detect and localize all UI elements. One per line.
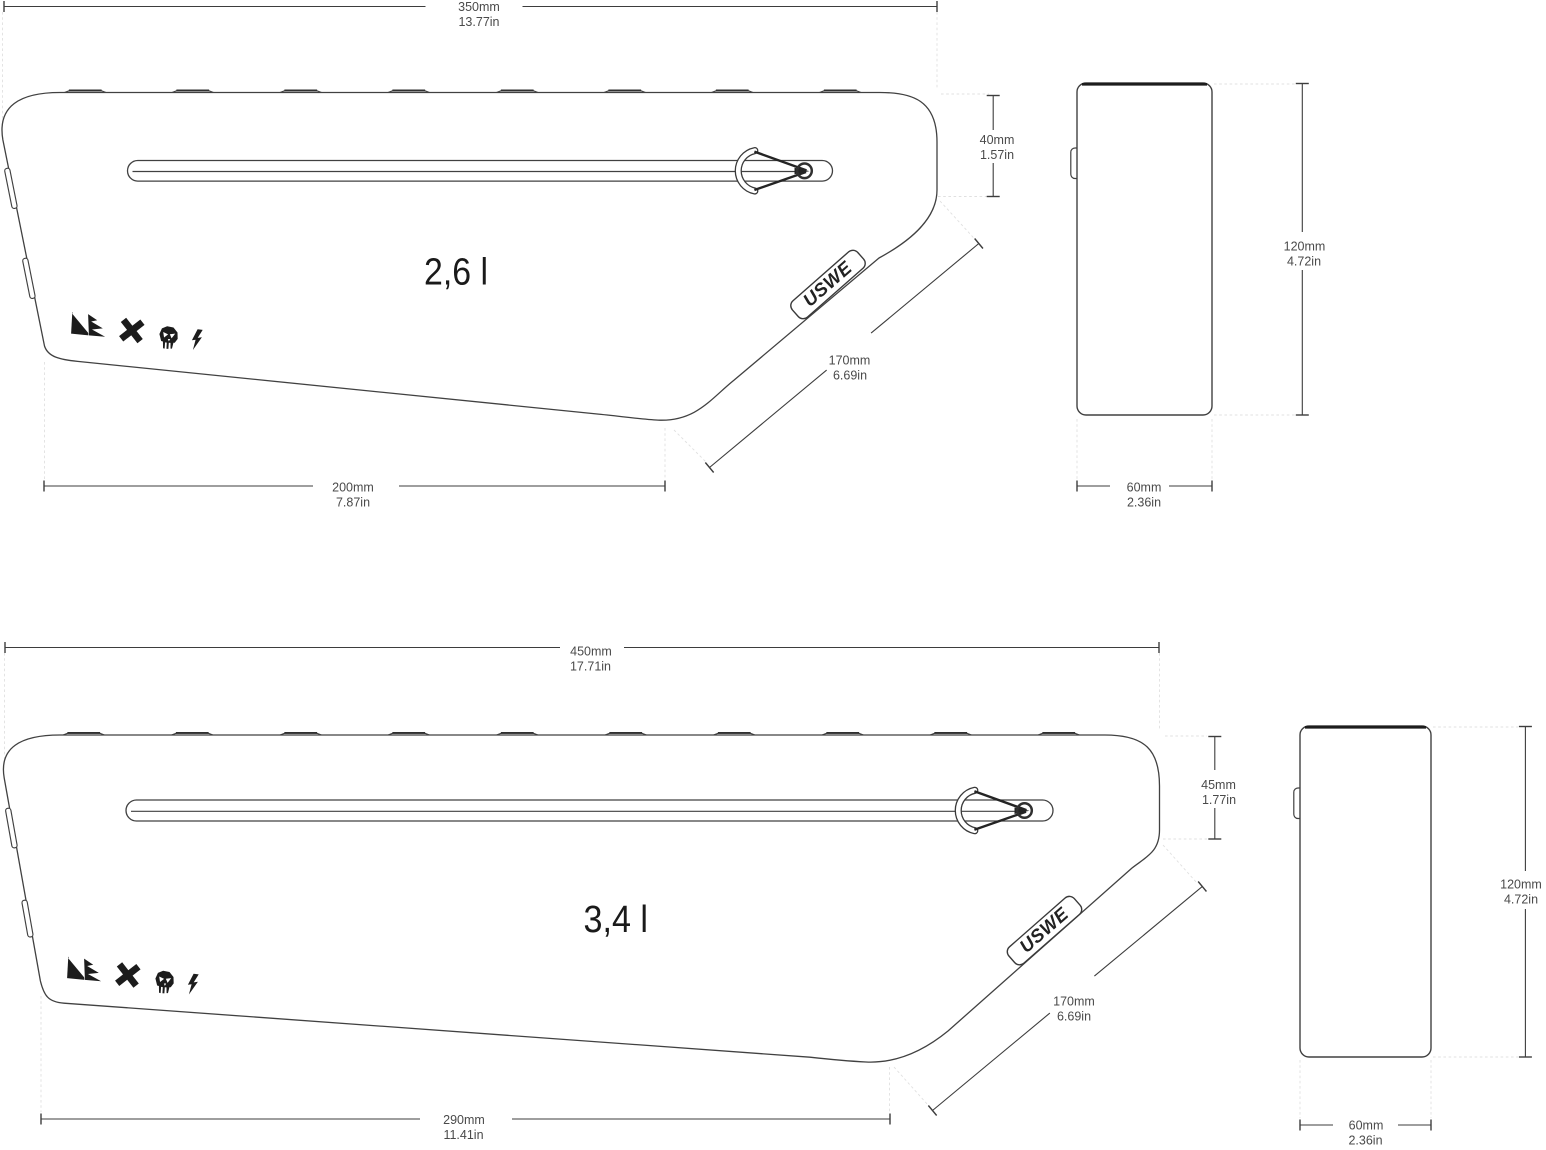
svg-text:170mm: 170mm	[829, 354, 871, 368]
svg-text:170mm: 170mm	[1053, 995, 1095, 1009]
svg-text:1.57in: 1.57in	[980, 148, 1014, 162]
svg-text:2,6 l: 2,6 l	[424, 252, 488, 294]
svg-text:450mm: 450mm	[570, 645, 612, 659]
svg-text:3,4 l: 3,4 l	[584, 899, 649, 941]
svg-text:40mm: 40mm	[980, 133, 1015, 147]
svg-text:6.69in: 6.69in	[833, 369, 867, 383]
svg-text:1.77in: 1.77in	[1202, 793, 1236, 807]
svg-text:4.72in: 4.72in	[1504, 893, 1538, 907]
svg-text:120mm: 120mm	[1500, 878, 1542, 892]
svg-text:200mm: 200mm	[332, 481, 374, 495]
svg-text:11.41in: 11.41in	[443, 1128, 483, 1142]
svg-text:60mm: 60mm	[1127, 481, 1162, 495]
svg-text:13.77in: 13.77in	[458, 15, 499, 29]
svg-text:350mm: 350mm	[458, 0, 500, 14]
svg-text:2.36in: 2.36in	[1127, 496, 1161, 510]
svg-text:4.72in: 4.72in	[1287, 255, 1321, 269]
svg-text:17.71in: 17.71in	[570, 660, 611, 674]
svg-text:7.87in: 7.87in	[336, 496, 370, 510]
svg-text:60mm: 60mm	[1349, 1119, 1384, 1133]
svg-text:290mm: 290mm	[443, 1113, 485, 1127]
svg-text:45mm: 45mm	[1201, 778, 1236, 792]
svg-text:6.69in: 6.69in	[1057, 1010, 1091, 1024]
svg-text:120mm: 120mm	[1284, 240, 1326, 254]
svg-text:2.36in: 2.36in	[1348, 1134, 1382, 1148]
